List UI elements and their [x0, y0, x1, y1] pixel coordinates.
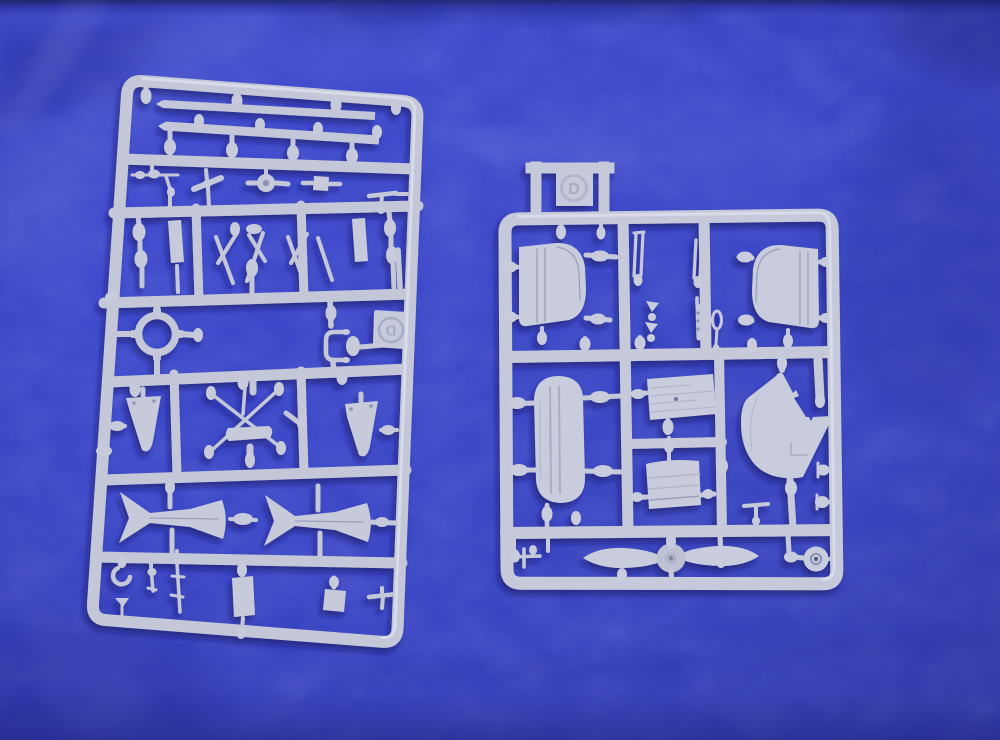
svg-text:D: D: [568, 181, 580, 198]
svg-text:D: D: [385, 323, 396, 340]
